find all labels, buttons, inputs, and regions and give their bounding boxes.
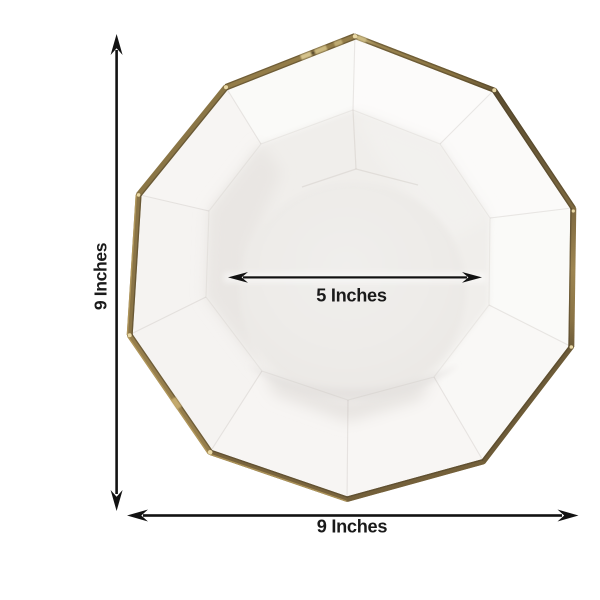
svg-text:5 Inches: 5 Inches — [316, 286, 387, 306]
svg-text:9 Inches: 9 Inches — [317, 517, 388, 537]
svg-text:9 Inches: 9 Inches — [91, 242, 111, 310]
